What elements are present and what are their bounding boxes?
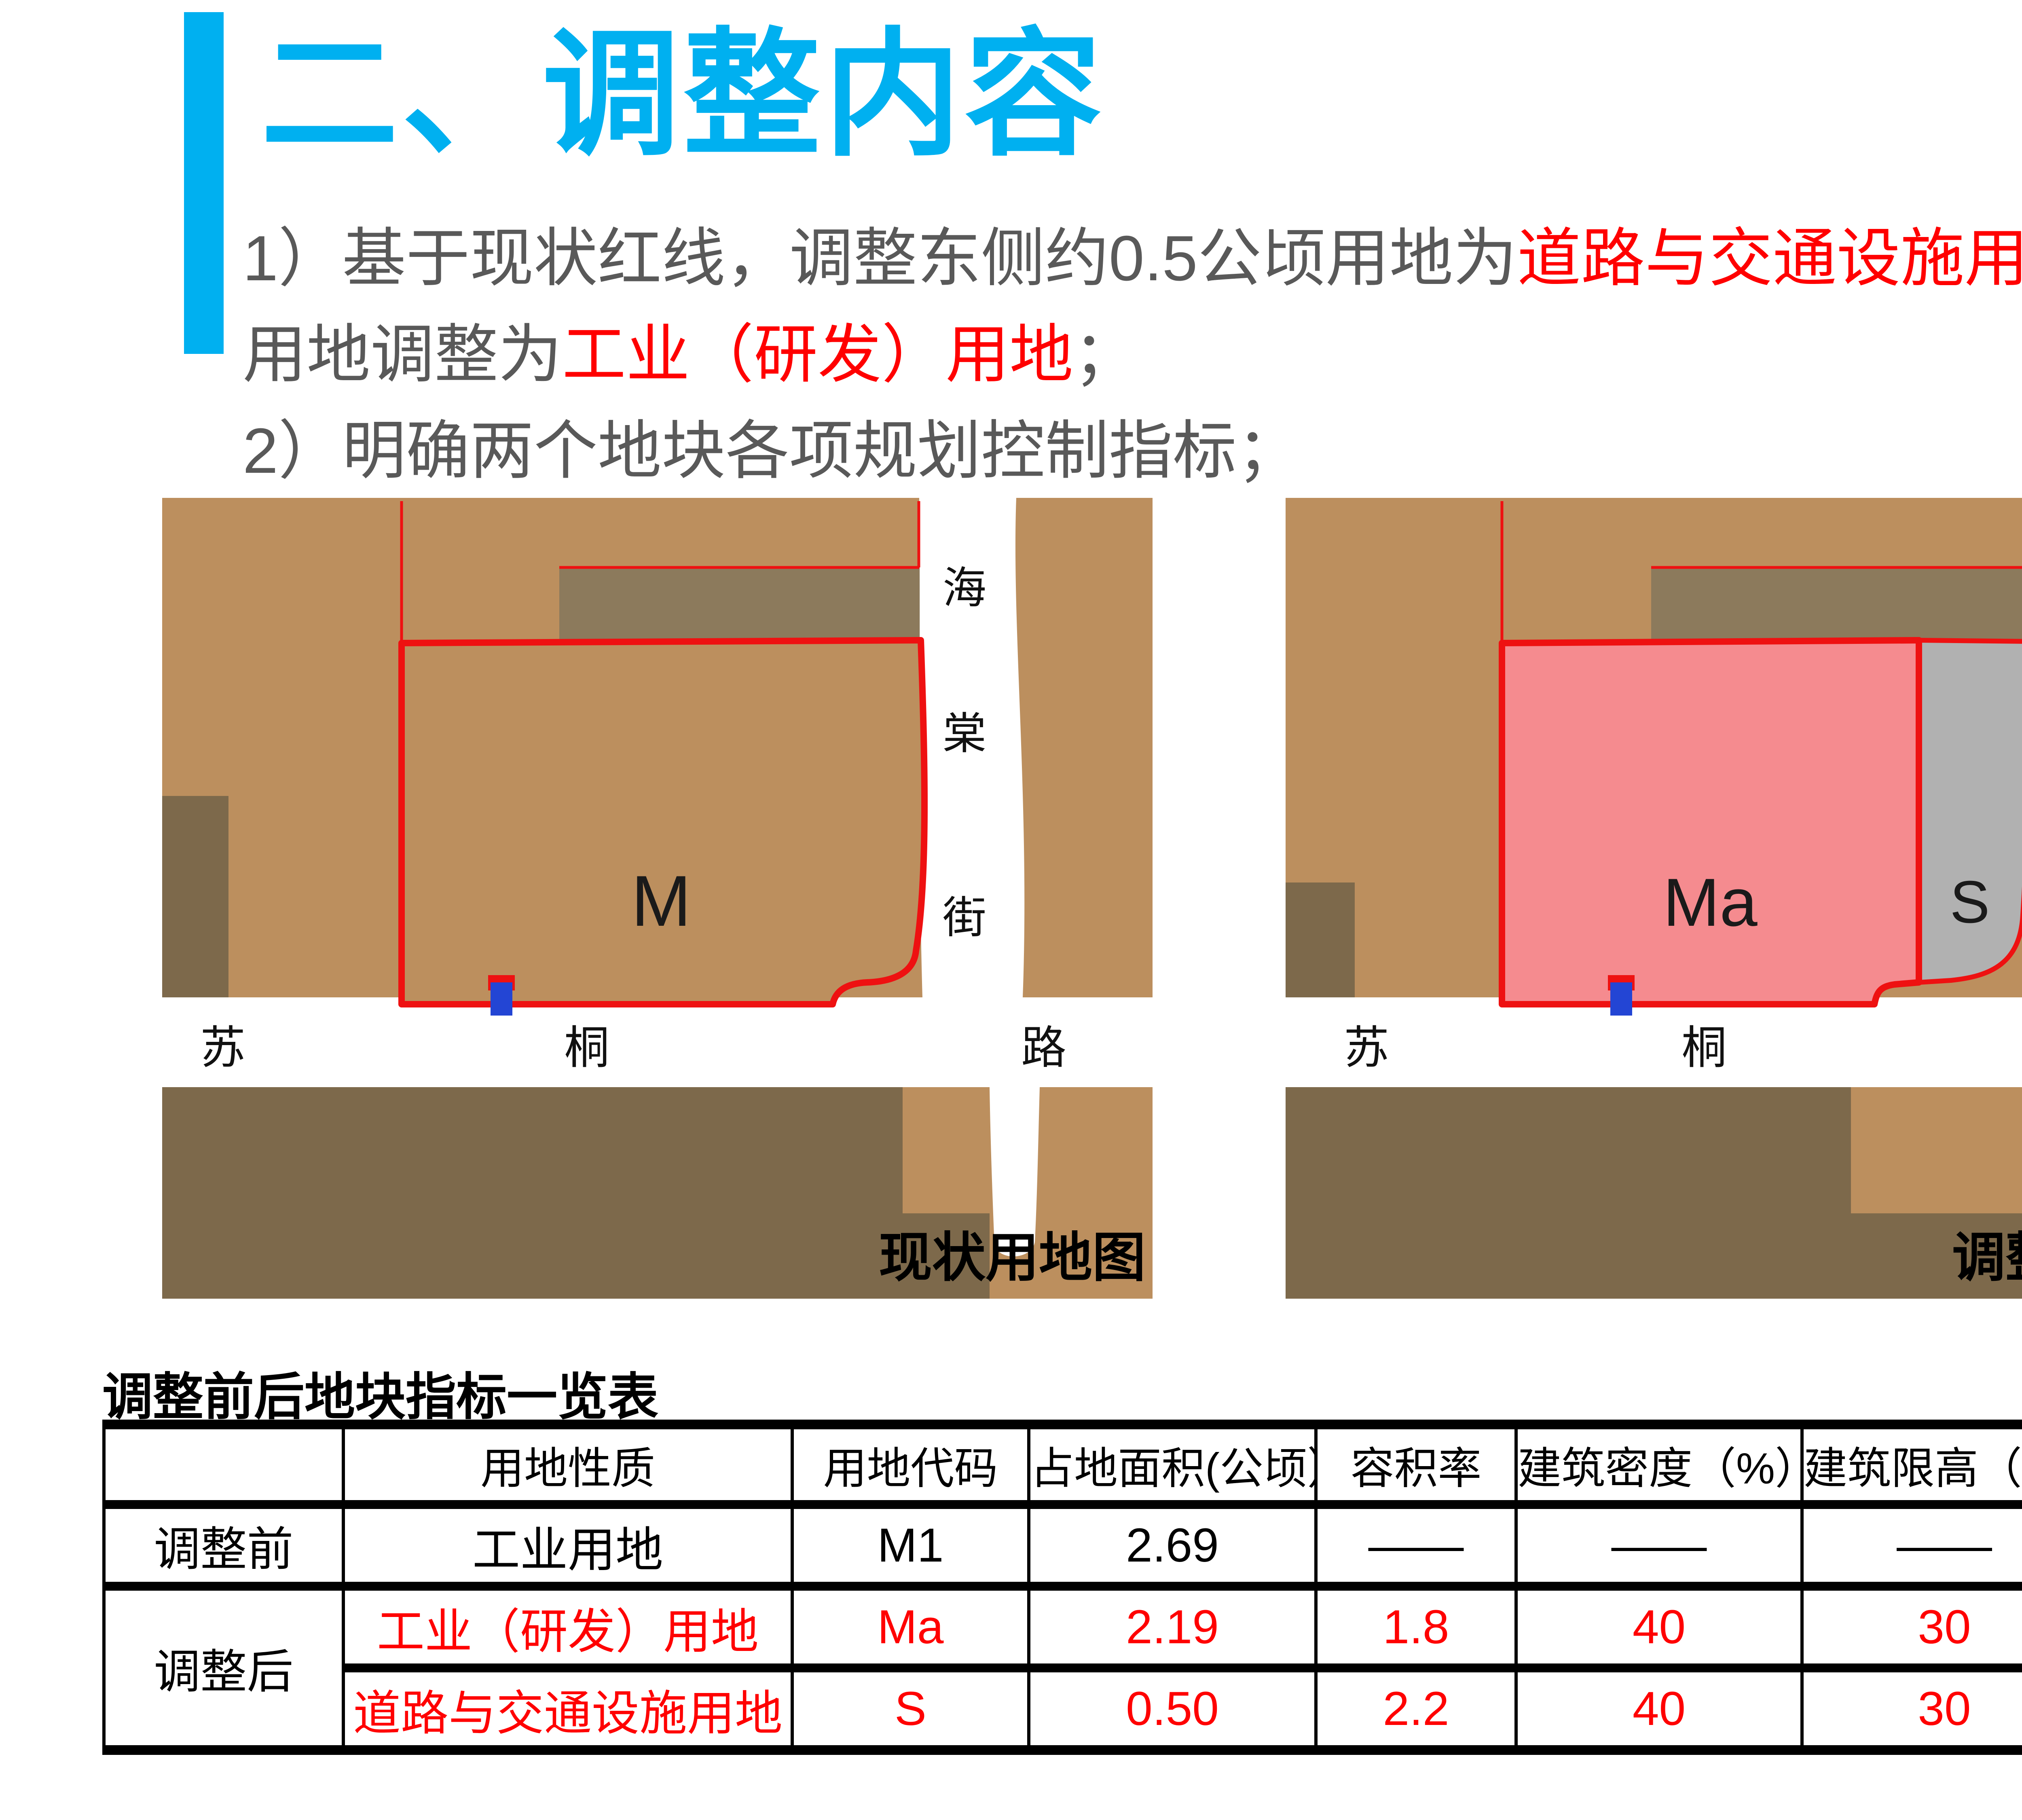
header-landuse-code: 用地代码 bbox=[792, 1424, 1029, 1505]
street-char-2: 棠 bbox=[943, 709, 986, 758]
table-header-row: 用地性质 用地代码 占地面积(公顷） 容积率 建筑密度（%） 建筑限高（米） 绿… bbox=[104, 1424, 2022, 1505]
street-char-1: 海 bbox=[943, 563, 986, 612]
cell: 2.2 bbox=[1316, 1668, 1516, 1750]
road-char-2: 桐 bbox=[1681, 1022, 1727, 1073]
west-parcel-dark bbox=[1286, 882, 1355, 997]
accent-bar bbox=[184, 12, 224, 354]
map-adjusted-landuse: 海 棠 街 苏 桐 路 Ma S 调整后用地图 bbox=[1286, 498, 2022, 1299]
road-char-2: 桐 bbox=[564, 1022, 609, 1073]
intro-line: 2）明确两个地块各项规划控制指标； bbox=[243, 403, 2022, 499]
intro-highlight: 工业（研发）用地 bbox=[562, 319, 1073, 390]
map-caption-current: 现状用地图 bbox=[879, 1228, 1146, 1287]
cell: 工业用地 bbox=[343, 1505, 792, 1586]
cell: 0.50 bbox=[1029, 1668, 1316, 1750]
cell: 40 bbox=[1516, 1586, 1802, 1668]
road-char-3: 路 bbox=[1021, 1022, 1066, 1073]
table-row-before: 调整前 工业用地 M1 2.69 —— —— —— —— bbox=[104, 1505, 2022, 1586]
table-title: 调整前后地块指标一览表 bbox=[102, 1356, 658, 1429]
intro-segment: 1）基于现状红线，调整东侧约0.5公顷用地为 bbox=[243, 223, 1517, 294]
cell: 40 bbox=[1516, 1668, 1802, 1750]
marker-blue bbox=[1610, 982, 1632, 1016]
slide: 二、调整内容 1）基于现状红线，调整东侧约0.5公顷用地为道路与交通设施用地，其… bbox=[0, 0, 2022, 1820]
page-title: 二、调整内容 bbox=[261, 19, 1105, 171]
intro-segment: 用地调整为 bbox=[243, 319, 562, 390]
table-row-after-s: 道路与交通设施用地 S 0.50 2.2 40 30 15 bbox=[104, 1668, 2022, 1750]
marker-blue bbox=[491, 982, 512, 1016]
intro-segment: ； bbox=[1073, 319, 1137, 390]
intro-line: 1）基于现状红线，调整东侧约0.5公顷用地为道路与交通设施用地，其余 bbox=[243, 210, 2022, 307]
parcel-s-label: S bbox=[1950, 869, 1990, 935]
cell: 1.8 bbox=[1316, 1586, 1516, 1668]
table-row-after-ma: 调整后 工业（研发）用地 Ma 2.19 1.8 40 30 30 bbox=[104, 1586, 2022, 1668]
row-label-before: 调整前 bbox=[104, 1505, 343, 1586]
cell: 30 bbox=[1802, 1586, 2022, 1668]
south-parcel-dark bbox=[162, 1087, 903, 1299]
intro-segment: 2）明确两个地块各项规划控制指标； bbox=[243, 415, 1301, 487]
header-density: 建筑密度（%） bbox=[1516, 1424, 1802, 1505]
street-char-3: 街 bbox=[943, 893, 986, 942]
indicators-table: 用地性质 用地代码 占地面积(公顷） 容积率 建筑密度（%） 建筑限高（米） 绿… bbox=[102, 1420, 2022, 1755]
intro-text: 1）基于现状红线，调整东侧约0.5公顷用地为道路与交通设施用地，其余用地调整为工… bbox=[243, 210, 2022, 499]
cell: —— bbox=[1802, 1505, 2022, 1586]
parcel-ma-pink bbox=[1502, 640, 1919, 1004]
cell: 2.19 bbox=[1029, 1586, 1316, 1668]
header-landuse-nature: 用地性质 bbox=[343, 1424, 792, 1505]
header-area: 占地面积(公顷） bbox=[1029, 1424, 1316, 1505]
cell: M1 bbox=[792, 1505, 1029, 1586]
parcel-m-redline bbox=[402, 640, 924, 1004]
parcel-ma-label: Ma bbox=[1663, 864, 1758, 940]
cell: Ma bbox=[792, 1586, 1029, 1668]
road-horizontal bbox=[162, 997, 1153, 1087]
cell: S bbox=[792, 1668, 1029, 1750]
south-parcel-dark bbox=[1286, 1087, 1851, 1299]
header-empty bbox=[104, 1424, 343, 1505]
row-label-after: 调整后 bbox=[104, 1586, 343, 1750]
road-char-1: 苏 bbox=[1344, 1022, 1389, 1073]
west-parcel-dark bbox=[162, 796, 228, 997]
cell: 道路与交通设施用地 bbox=[343, 1668, 792, 1750]
cell: —— bbox=[1316, 1505, 1516, 1586]
intro-line: 用地调整为工业（研发）用地； bbox=[243, 307, 2022, 403]
road-char-1: 苏 bbox=[200, 1022, 245, 1073]
cell: 工业（研发）用地 bbox=[343, 1586, 792, 1668]
intro-highlight: 道路与交通设施用地 bbox=[1517, 223, 2022, 294]
building-parcel-dark bbox=[1651, 567, 2022, 643]
building-parcel-dark bbox=[559, 567, 922, 643]
cell: 30 bbox=[1802, 1668, 2022, 1750]
cell: —— bbox=[1516, 1505, 1802, 1586]
map-current-landuse: 海 棠 街 苏 桐 路 M 现状用地图 bbox=[162, 498, 1153, 1299]
map-caption-adjusted: 调整后用地图 bbox=[1952, 1228, 2022, 1287]
cell: 2.69 bbox=[1029, 1505, 1316, 1586]
road-horizontal bbox=[1286, 997, 2022, 1087]
parcel-m-label: M bbox=[631, 861, 691, 941]
header-height-limit: 建筑限高（米） bbox=[1802, 1424, 2022, 1505]
header-far: 容积率 bbox=[1316, 1424, 1516, 1505]
